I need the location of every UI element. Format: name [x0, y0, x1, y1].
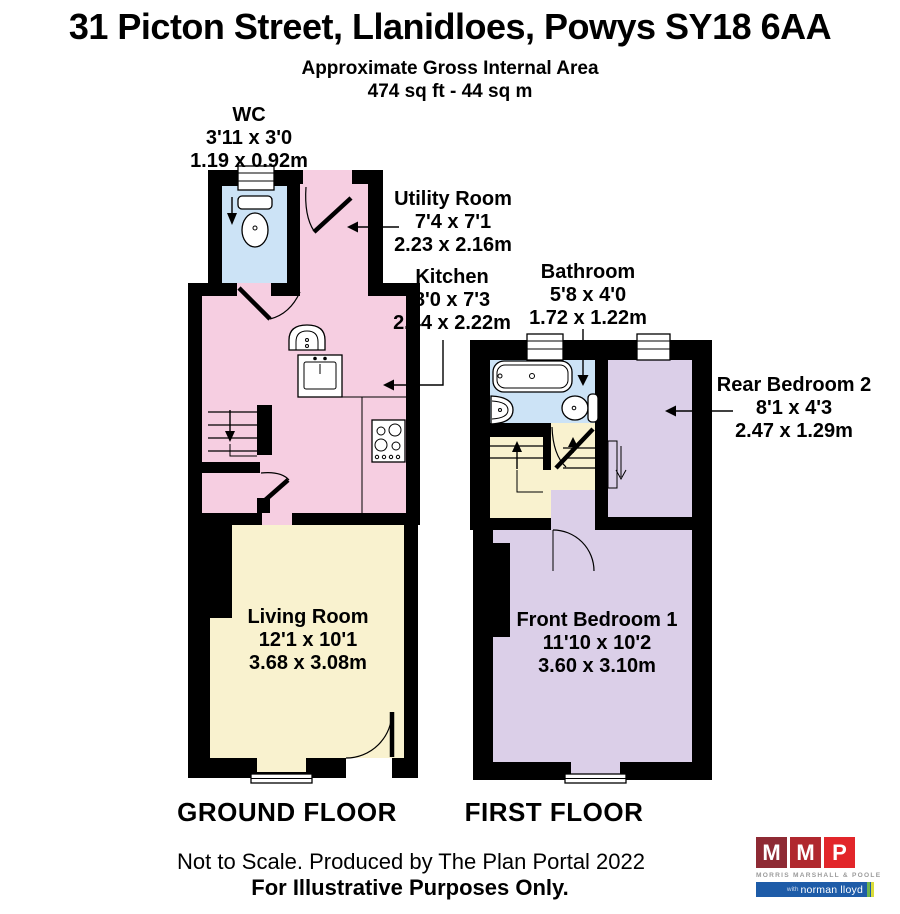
label-living-room: Living Room 12'1 x 10'1 3.68 x 3.08m — [247, 606, 368, 675]
room-name: Front Bedroom 1 — [516, 609, 677, 632]
room-dims-ft: 12'1 x 10'1 — [247, 629, 368, 652]
label-wc: WC 3'11 x 3'0 1.19 x 0.92m — [190, 104, 308, 173]
room-dims-m: 1.19 x 0.92m — [190, 150, 308, 173]
room-dims-ft: 3'11 x 3'0 — [190, 127, 308, 150]
kitchen-hob-icon — [372, 420, 405, 462]
logo-letter-m2: M — [790, 837, 821, 868]
label-utility-room: Utility Room 7'4 x 7'1 2.23 x 2.16m — [394, 188, 512, 257]
room-name: Living Room — [247, 606, 368, 629]
subtitle-area: Approximate Gross Internal Area — [301, 58, 598, 80]
logo-tagline-with: with — [787, 886, 799, 893]
room-dims-ft: 11'10 x 10'2 — [516, 632, 677, 655]
label-front-bedroom-1: Front Bedroom 1 11'10 x 10'2 3.60 x 3.10… — [516, 609, 677, 678]
room-rear-bedroom-2 — [608, 360, 692, 517]
logo-letter-p: P — [824, 837, 855, 868]
gf-bay-window — [251, 758, 312, 783]
logo-lime-stripe — [871, 882, 874, 897]
floorplan-document: 31 Picton Street, Llanidloes, Powys SY18… — [0, 0, 900, 914]
room-dims-ft: 8'0 x 7'3 — [393, 289, 511, 312]
label-rear-bedroom-2: Rear Bedroom 2 8'1 x 4'3 2.47 x 1.29m — [717, 374, 872, 443]
logo-green-stripe — [867, 882, 870, 897]
mmp-logo: M M P MORRIS MARSHALL & POOLE with norma… — [756, 837, 874, 897]
ff-bedroom-vestibule — [551, 490, 595, 530]
logo-tagline-bar: with norman lloyd — [756, 882, 874, 897]
bath-icon — [493, 361, 572, 392]
floorplan-drawing — [0, 0, 900, 914]
ff-bottom-window — [565, 762, 626, 783]
gf-hall-door-gap — [262, 513, 292, 525]
footer-illustrative: For Illustrative Purposes Only. — [251, 875, 568, 901]
gf-utility-backdoor-gap — [303, 170, 352, 186]
room-dims-m: 2.47 x 1.29m — [717, 420, 872, 443]
first-floor-label: FIRST FLOOR — [465, 797, 644, 828]
ff-alcove-wall — [493, 543, 510, 637]
ff-toilet-icon — [562, 394, 598, 422]
ground-floor-plan — [188, 166, 443, 783]
kitchen-sink-icon — [298, 355, 342, 397]
logo-letter-m1: M — [756, 837, 787, 868]
room-utility — [300, 184, 368, 298]
room-name: Kitchen — [393, 266, 511, 289]
footer-disclaimer: Not to Scale. Produced by The Plan Porta… — [177, 849, 645, 875]
room-dims-m: 1.72 x 1.22m — [529, 307, 647, 330]
mmp-logo-squares: M M P — [756, 837, 874, 868]
room-name: Rear Bedroom 2 — [717, 374, 872, 397]
room-name: Bathroom — [529, 261, 647, 284]
label-kitchen: Kitchen 8'0 x 7'3 2.44 x 2.22m — [393, 266, 511, 335]
first-floor-plan — [470, 329, 733, 783]
page-title: 31 Picton Street, Llanidloes, Powys SY18… — [69, 6, 831, 48]
ff-bedroom2-window — [637, 334, 670, 360]
subtitle-size: 474 sq ft - 44 sq m — [368, 81, 533, 103]
gf-understair-wall — [202, 462, 260, 473]
ff-landing-wall-stub — [543, 433, 551, 470]
gf-stair-wall-stub — [257, 405, 272, 455]
room-name: WC — [190, 104, 308, 127]
room-dims-m: 3.68 x 3.08m — [247, 652, 368, 675]
room-name: Utility Room — [394, 188, 512, 211]
label-bathroom: Bathroom 5'8 x 4'0 1.72 x 1.22m — [529, 261, 647, 330]
logo-company-name: MORRIS MARSHALL & POOLE — [756, 872, 874, 879]
logo-tagline-name: norman lloyd — [800, 884, 863, 896]
room-dims-ft: 8'1 x 4'3 — [717, 397, 872, 420]
room-dims-m: 2.23 x 2.16m — [394, 234, 512, 257]
ff-bathroom-window — [527, 334, 563, 360]
room-dims-ft: 7'4 x 7'1 — [394, 211, 512, 234]
gf-basin-icon — [289, 325, 325, 350]
room-dims-m: 2.44 x 2.22m — [393, 312, 511, 335]
ground-floor-label: GROUND FLOOR — [177, 797, 397, 828]
room-dims-ft: 5'8 x 4'0 — [529, 284, 647, 307]
room-dims-m: 3.60 x 3.10m — [516, 655, 677, 678]
